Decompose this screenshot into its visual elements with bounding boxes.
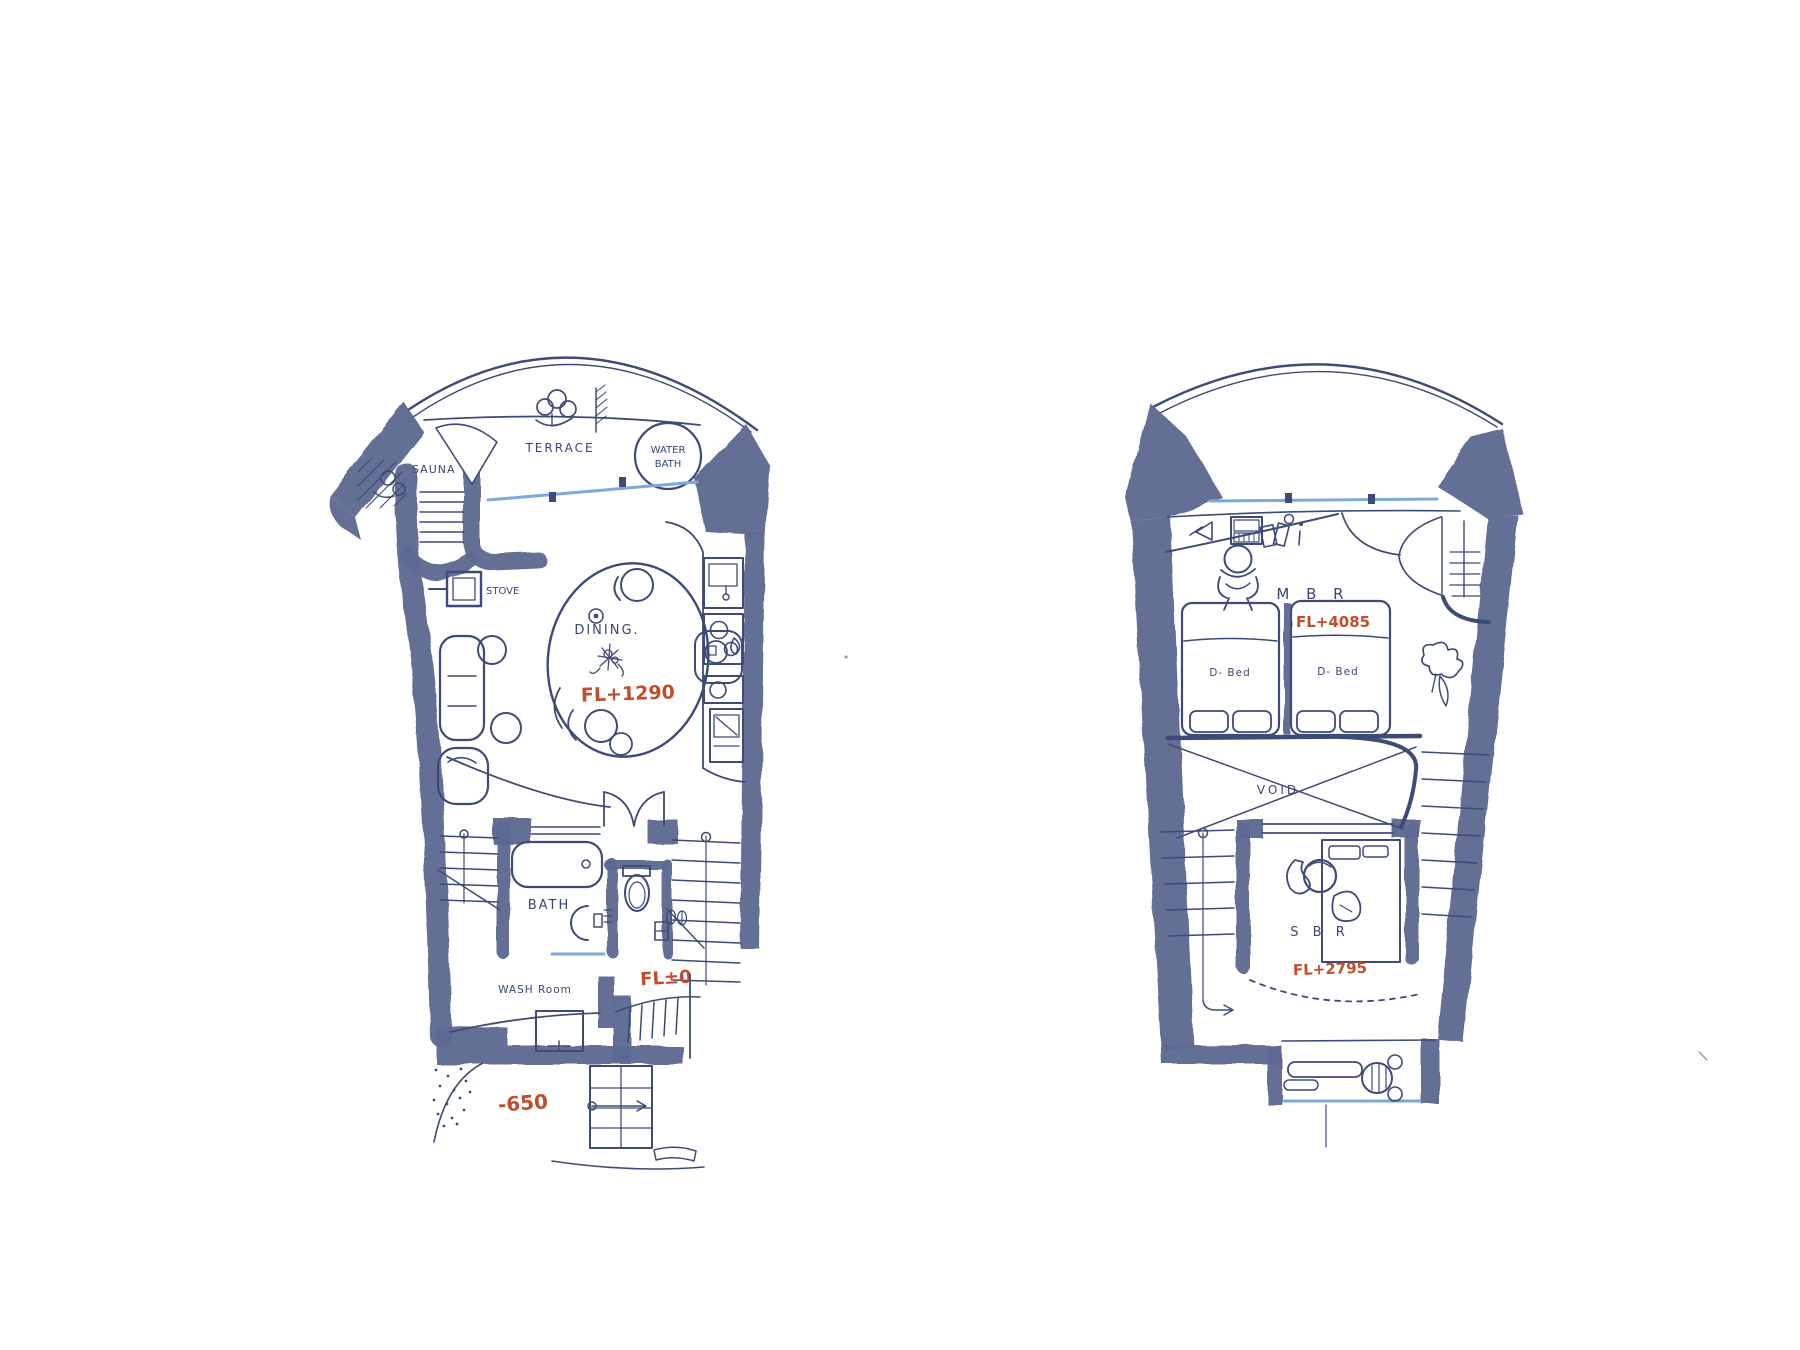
wash-level-label: FL±0 (640, 967, 692, 991)
master-bedroom: M B R D- Bed FL+4085 D- Bed (1168, 513, 1489, 738)
water-bath: WATER BATH (635, 423, 701, 489)
sbr-label: S B R (1290, 925, 1349, 940)
upper-floor-plan: M B R D- Bed FL+4085 D- Bed (1126, 364, 1523, 1147)
bed-right: FL+4085 D- Bed (1291, 601, 1390, 735)
sbr-person (1287, 860, 1360, 921)
window-nook (1282, 1040, 1435, 1147)
second-bedroom: S B R FL+2795 (1250, 824, 1420, 1001)
entry-level-label: -650 (497, 1089, 549, 1116)
master-level-label: FL+4085 (1296, 613, 1370, 631)
stove-label: STOVE (486, 586, 519, 597)
floor-plan-drawing: WATER BATH TERRACE SAUNA (0, 0, 1800, 1350)
closet (1342, 513, 1489, 622)
sofa-lounge (438, 636, 521, 804)
flower-centerpiece (590, 644, 623, 676)
bedroom-rail-wall (1168, 736, 1420, 738)
entry-area: -650 (433, 974, 704, 1169)
ladder-swing-dashed (1250, 980, 1420, 1001)
door-mat (654, 1147, 696, 1161)
entry-steps (588, 1066, 652, 1148)
bath-label: BATH (528, 898, 571, 913)
ground-hatch-mark (596, 385, 607, 432)
sbr-level-label: FL+2795 (1293, 959, 1368, 980)
roof-arc-lower (408, 358, 757, 432)
nook-person-lying (1284, 1055, 1402, 1101)
water-bath-label-1: WATER (651, 445, 686, 456)
bath-sink (571, 906, 612, 940)
terrace-label: TERRACE (524, 441, 594, 455)
void-area: VOID (1168, 737, 1416, 838)
bed-left: D- Bed (1182, 603, 1279, 735)
wash-room-label: WASH Room (498, 984, 572, 996)
bed-right-label: D- Bed (1317, 666, 1359, 678)
floor-plan-sketch-canvas: WATER BATH TERRACE SAUNA (0, 0, 1800, 1350)
window-glass-line-upper (1210, 493, 1437, 504)
water-bath-label-2: BATH (655, 459, 682, 470)
floor-level-edge (447, 757, 610, 807)
sauna-steps (420, 492, 464, 542)
void-label: VOID (1257, 783, 1299, 797)
stray-marks (844, 655, 1707, 1060)
terrace-plant (536, 390, 576, 426)
lower-floor-plan: WATER BATH TERRACE SAUNA (329, 358, 770, 1169)
dining-label: DINING. (574, 623, 639, 638)
wc-room (623, 866, 668, 940)
bathroom: BATH (512, 792, 668, 954)
roof-arc-upper (1153, 364, 1502, 427)
desk-lamp (1285, 515, 1294, 524)
desk-chair-person (1218, 546, 1258, 611)
sauna-label: SAUNA (412, 463, 456, 476)
plant-upper (1422, 642, 1463, 706)
bathtub (512, 842, 602, 887)
monitor (1231, 517, 1262, 544)
dining-level-label: FL+1290 (581, 681, 676, 706)
stairs-lower-right (666, 833, 740, 986)
bed-left-label: D- Bed (1209, 667, 1251, 679)
speaker-doodle (1190, 522, 1212, 540)
living-dining-area: STOVE (429, 553, 742, 807)
